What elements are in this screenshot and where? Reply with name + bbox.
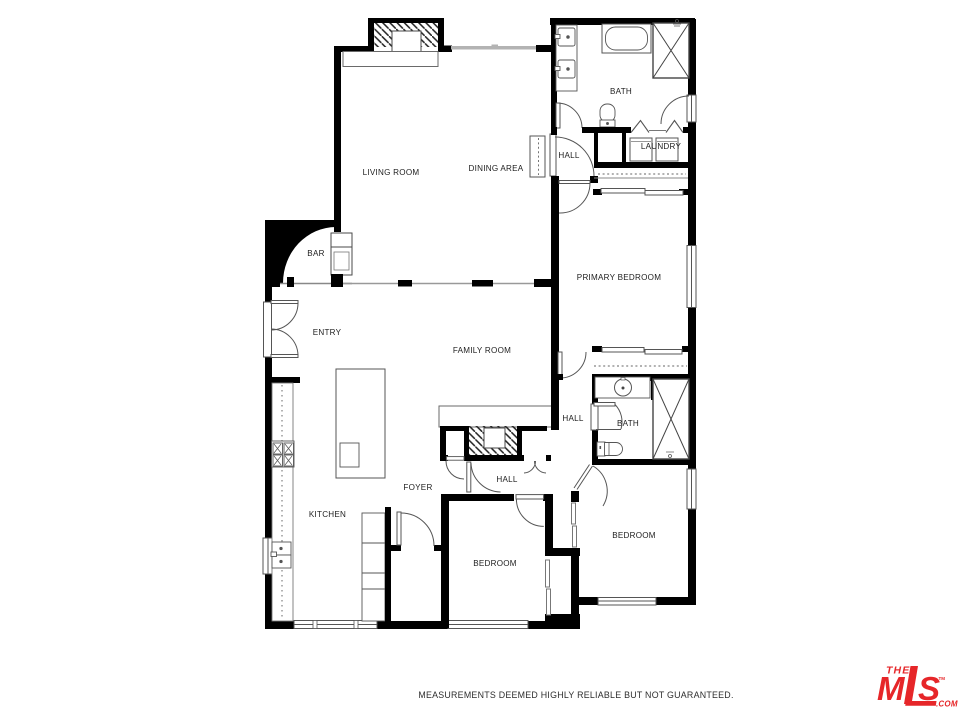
svg-text:TM: TM bbox=[939, 676, 946, 681]
svg-text:ENTRY: ENTRY bbox=[313, 328, 342, 337]
svg-text:BAR: BAR bbox=[307, 249, 324, 258]
svg-text:PRIMARY BEDROOM: PRIMARY BEDROOM bbox=[577, 273, 661, 282]
svg-text:BEDROOM: BEDROOM bbox=[612, 531, 656, 540]
svg-text:M: M bbox=[877, 670, 906, 707]
svg-text:DINING AREA: DINING AREA bbox=[469, 164, 524, 173]
svg-text:KITCHEN: KITCHEN bbox=[309, 510, 346, 519]
svg-text:LAUNDRY: LAUNDRY bbox=[641, 142, 682, 151]
svg-text:FAMILY ROOM: FAMILY ROOM bbox=[453, 346, 511, 355]
svg-text:.COM: .COM bbox=[936, 700, 958, 709]
svg-text:BATH: BATH bbox=[617, 419, 639, 428]
svg-text:HALL: HALL bbox=[558, 151, 579, 160]
svg-text:BEDROOM: BEDROOM bbox=[473, 559, 517, 568]
svg-text:FOYER: FOYER bbox=[403, 483, 432, 492]
svg-text:BATH: BATH bbox=[610, 87, 632, 96]
svg-text:MEASUREMENTS DEEMED HIGHLY REL: MEASUREMENTS DEEMED HIGHLY RELIABLE BUT … bbox=[418, 690, 733, 700]
svg-text:HALL: HALL bbox=[496, 475, 517, 484]
svg-text:LIVING ROOM: LIVING ROOM bbox=[363, 168, 420, 177]
svg-text:HALL: HALL bbox=[562, 414, 583, 423]
